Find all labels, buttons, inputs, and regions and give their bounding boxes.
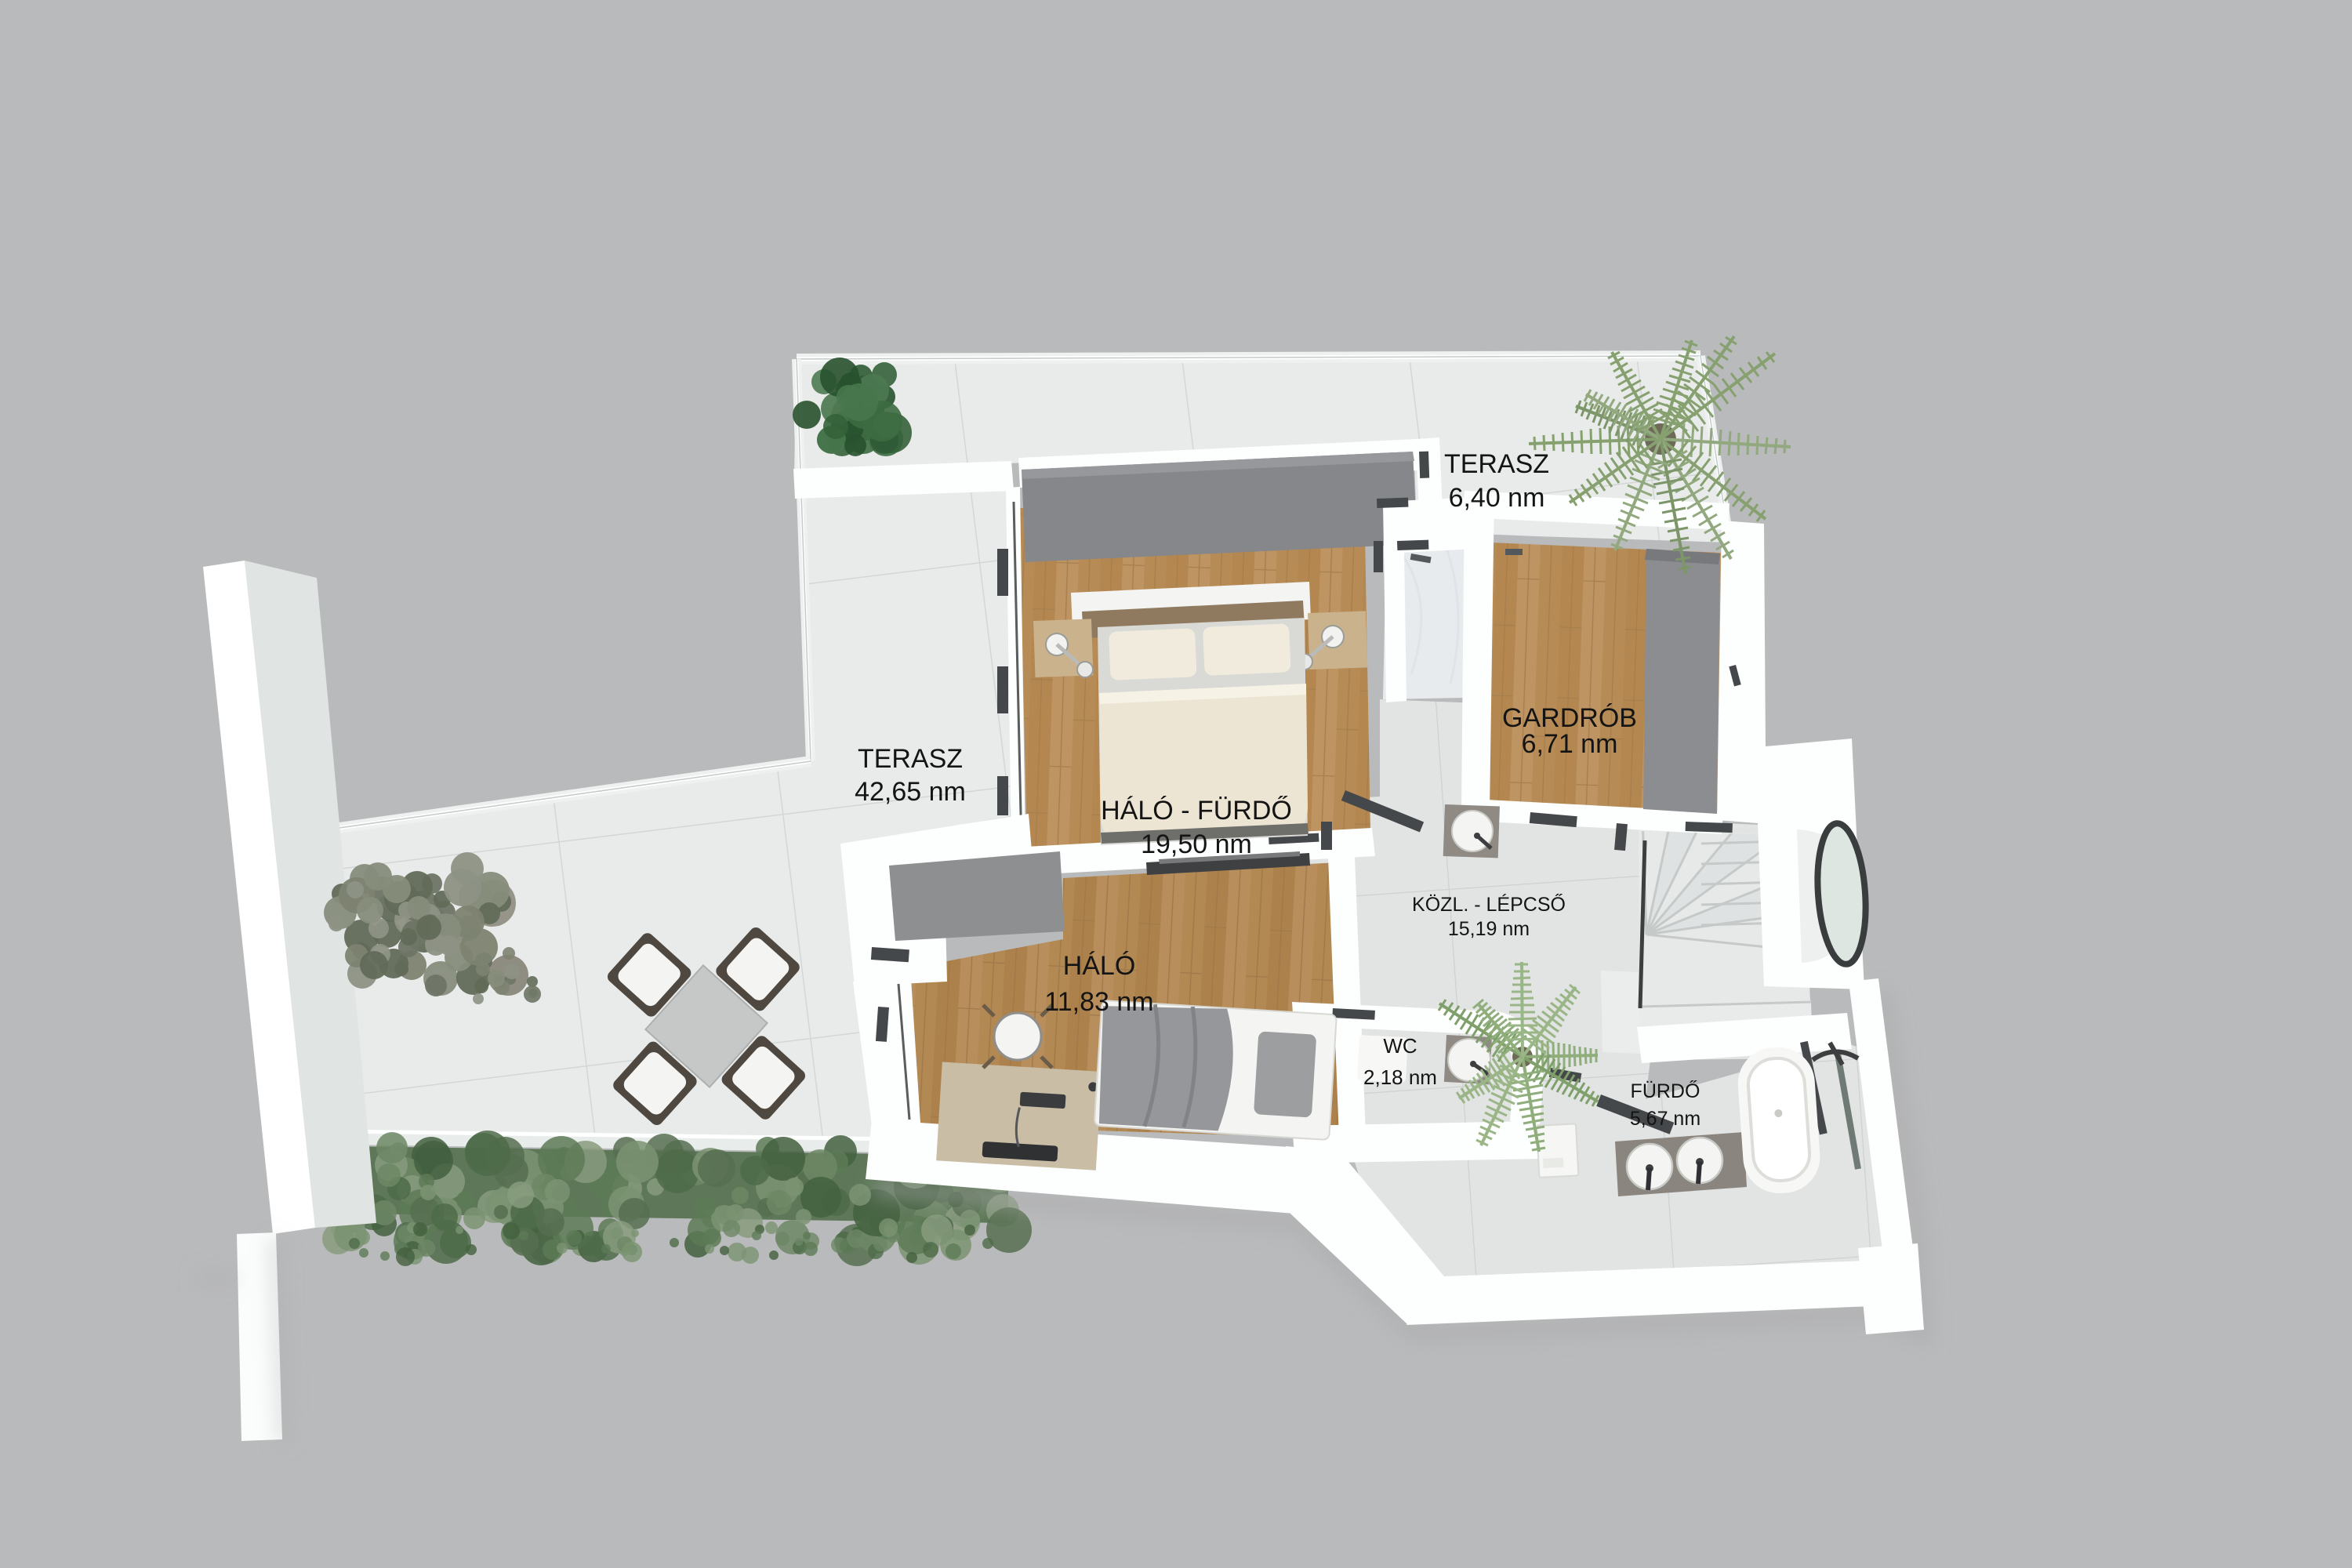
svg-text:TERASZ: TERASZ — [858, 744, 963, 774]
svg-text:19,50 nm: 19,50 nm — [1141, 829, 1252, 859]
svg-text:HÁLÓ - FÜRDŐ: HÁLÓ - FÜRDŐ — [1101, 796, 1292, 826]
svg-text:FÜRDŐ: FÜRDŐ — [1631, 1080, 1700, 1102]
svg-text:6,40 nm: 6,40 nm — [1449, 483, 1545, 513]
svg-text:6,71 nm: 6,71 nm — [1522, 729, 1618, 759]
svg-text:WC: WC — [1383, 1034, 1417, 1058]
svg-text:KÖZL. - LÉPCSŐ: KÖZL. - LÉPCSŐ — [1412, 893, 1566, 916]
svg-text:HÁLÓ: HÁLÓ — [1063, 951, 1136, 981]
svg-text:11,83 nm: 11,83 nm — [1044, 987, 1153, 1017]
svg-text:TERASZ: TERASZ — [1444, 449, 1549, 479]
svg-text:2,18 nm: 2,18 nm — [1363, 1065, 1437, 1089]
svg-text:42,65 nm: 42,65 nm — [855, 777, 966, 807]
svg-text:15,19 nm: 15,19 nm — [1448, 918, 1530, 940]
svg-text:5,67 nm: 5,67 nm — [1630, 1108, 1700, 1130]
